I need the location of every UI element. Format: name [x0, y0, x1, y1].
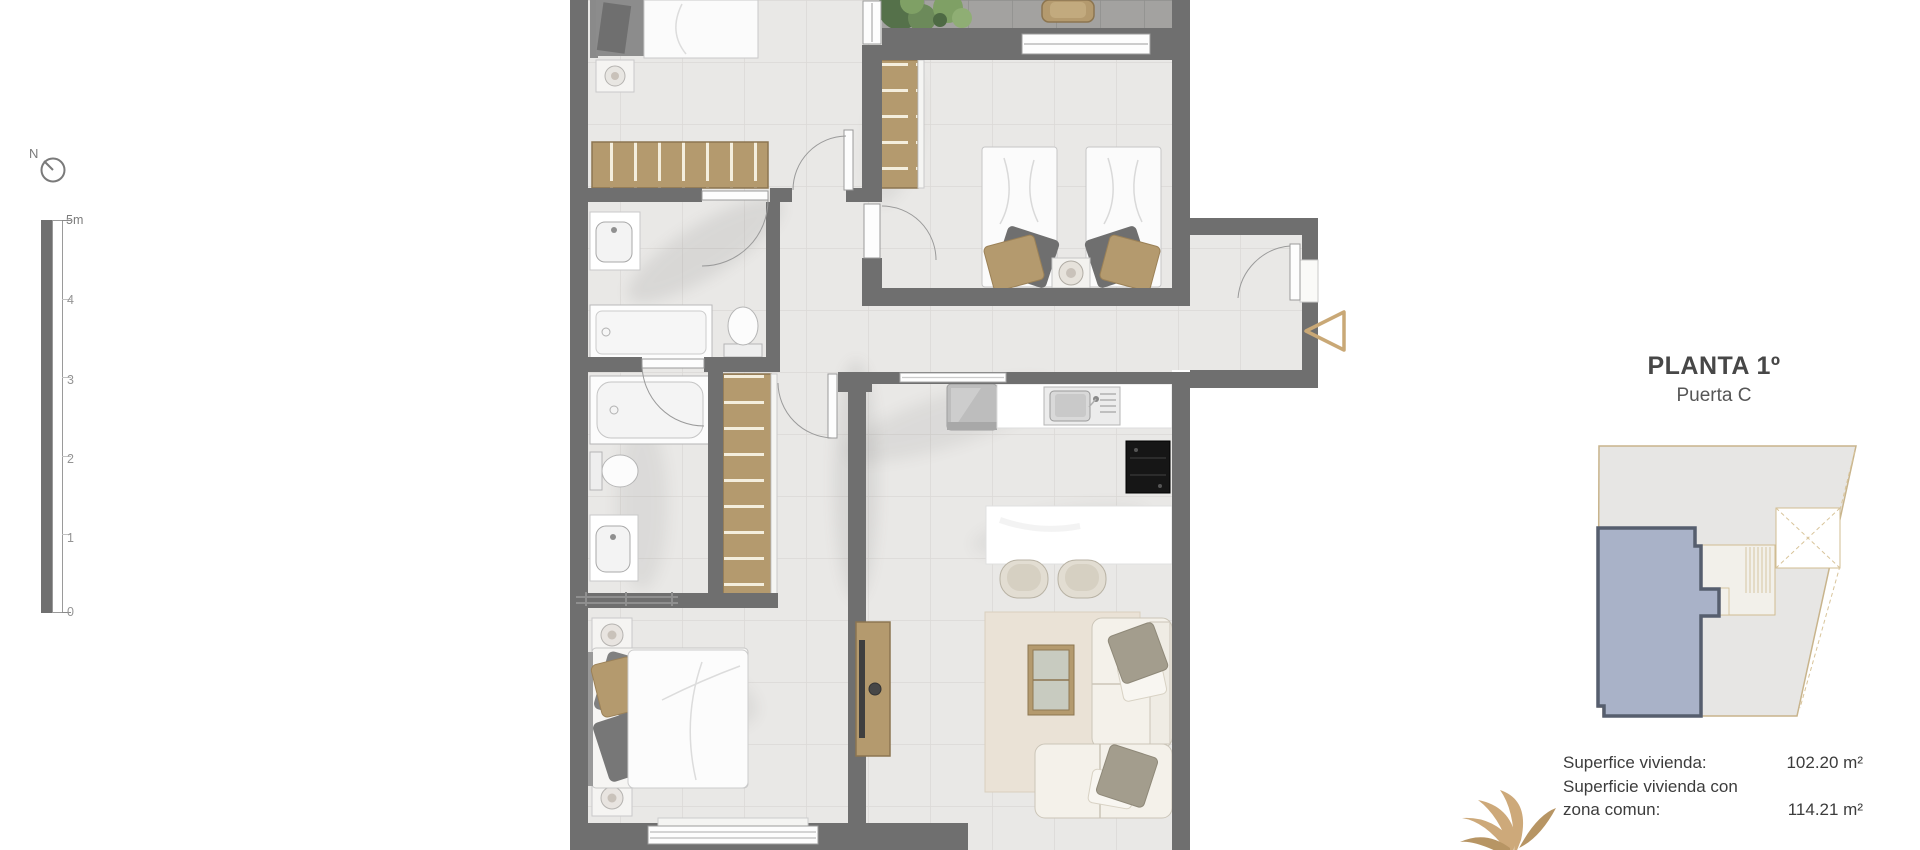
- wall-right-exterior: [1172, 372, 1190, 850]
- twin-bed-right: [1084, 147, 1161, 292]
- scale-bar-fill: [41, 220, 52, 613]
- site-plan: [1598, 446, 1856, 716]
- area-value: 102.20 m²: [1786, 751, 1863, 775]
- area-row: Superfice vivienda: 102.20 m²: [1563, 751, 1863, 775]
- bedroom3-window: [648, 818, 818, 844]
- scale-label-2: 2: [67, 452, 74, 466]
- north-indicator-icon: [42, 159, 65, 182]
- living-room-furniture: [985, 612, 1172, 818]
- terrace-door: [863, 1, 881, 44]
- fridge-icon: [947, 384, 997, 430]
- coffee-table-icon: [1028, 645, 1074, 715]
- area-row: zona comun: 114.21 m²: [1563, 798, 1863, 822]
- north-label: N: [29, 146, 38, 161]
- page: N 5m 4 3 2 1 0 PLANTA 1º Puerta C Superf…: [0, 0, 1920, 850]
- scale-label-3: 3: [67, 373, 74, 387]
- bedroom3-furniture: [588, 618, 748, 816]
- kitchen-island: [986, 506, 1172, 564]
- wall-corridor: [848, 372, 866, 850]
- toilet-icon: [590, 452, 638, 490]
- terrace-chair-icon: [1042, 0, 1094, 22]
- site-unit-highlight: [1598, 528, 1719, 716]
- double-bed: [588, 648, 748, 788]
- wall-entry: [1190, 218, 1318, 235]
- scale-label-5m: 5m: [66, 213, 83, 227]
- corridor-closet: [723, 374, 777, 600]
- floor-plan-drawing: [0, 0, 1920, 850]
- scale-bar-outline: [52, 220, 63, 613]
- scale-bar: [41, 220, 62, 613]
- twin-bed-left: [982, 147, 1060, 292]
- terrace-window: [1022, 34, 1150, 54]
- stool-icon: [1058, 560, 1106, 598]
- stool-icon: [1000, 560, 1048, 598]
- area-label: Superficie vivienda con: [1563, 775, 1738, 799]
- area-summary: Superfice vivienda: 102.20 m² Superficie…: [1563, 751, 1863, 822]
- tv-unit: [856, 622, 890, 756]
- area-label: Superfice vivienda:: [1563, 751, 1707, 775]
- area-label: zona comun:: [1563, 798, 1660, 822]
- palm-decoration-icon: [1460, 790, 1556, 850]
- wall-left-exterior: [570, 0, 588, 850]
- plan-header: PLANTA 1º Puerta C: [1580, 352, 1848, 407]
- kitchen-sink-icon: [1044, 387, 1120, 425]
- scale-label-1: 1: [67, 531, 74, 545]
- page-subtitle: Puerta C: [1580, 385, 1848, 407]
- wardrobe: [592, 142, 768, 188]
- kitchen-pass-window: [900, 373, 1006, 382]
- cooktop-icon: [1126, 441, 1170, 493]
- entry-threshold: [1300, 260, 1318, 302]
- wall-right-exterior: [1172, 0, 1190, 302]
- scale-label-4: 4: [67, 293, 74, 307]
- scale-label-0: 0: [67, 605, 74, 619]
- bed1-duvet: [644, 0, 758, 58]
- area-row: Superficie vivienda con: [1563, 775, 1863, 799]
- page-title: PLANTA 1º: [1580, 352, 1848, 381]
- area-value: 114.21 m²: [1788, 798, 1863, 822]
